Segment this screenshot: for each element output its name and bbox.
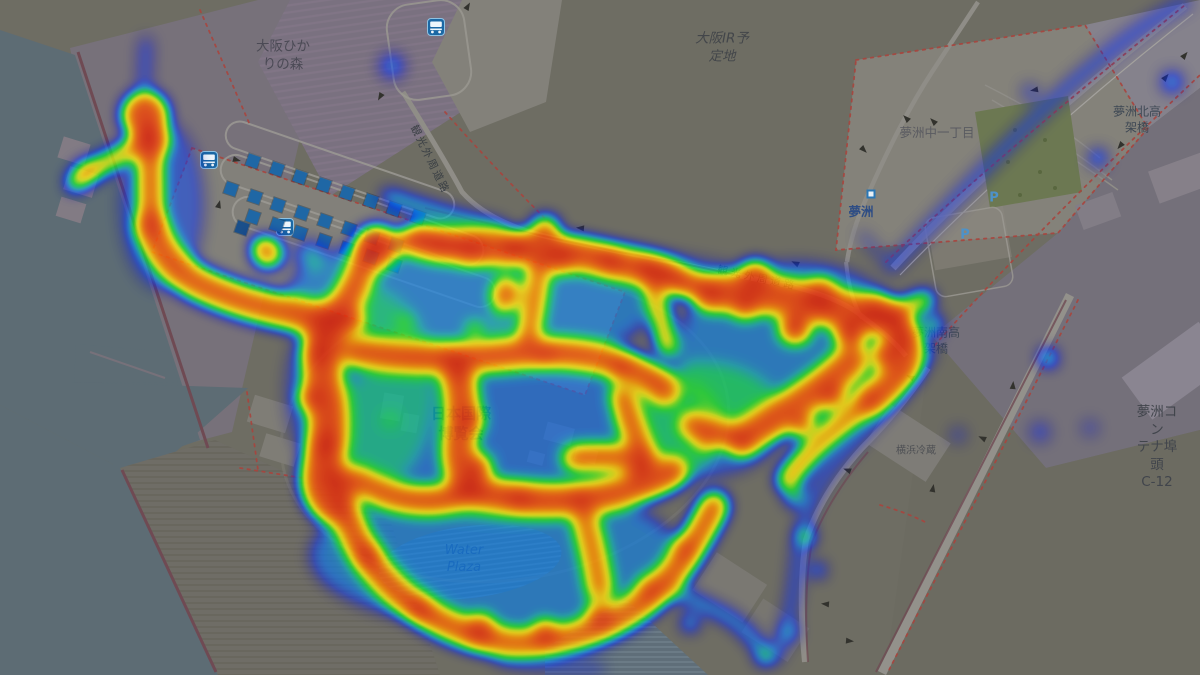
bus-bay-marker — [386, 257, 401, 272]
road-direction-arrow — [905, 373, 915, 382]
label-yumeshima-minami-kokakyo: 夢洲南高 架橋 — [912, 325, 960, 356]
label-yumeshima-naka-1: 夢洲中一丁目 — [899, 125, 974, 141]
road-direction-arrow — [1030, 86, 1039, 93]
bus-bay-marker — [363, 249, 378, 264]
label-expo-nihon-kokusai-hakurankai: 日本国際 博覧会 — [431, 405, 491, 444]
road-direction-arrow — [1180, 50, 1190, 60]
road-direction-arrow — [232, 156, 241, 164]
label-osaka-hikari-no-mori: 大阪ひか りの森 — [256, 38, 310, 73]
bus-bay-marker — [363, 193, 378, 208]
label-yumeshima-kita-kokakyo: 夢洲北高 架橋 — [1113, 104, 1161, 135]
bus-bay-marker — [339, 241, 354, 256]
road-direction-arrow — [842, 466, 852, 474]
bus-bay-marker — [247, 189, 262, 204]
road-direction-arrow — [821, 601, 829, 608]
bus-bay-marker — [294, 205, 309, 220]
bus-bay-marker — [386, 201, 401, 216]
bus-bay-marker — [269, 161, 284, 176]
parking-icon: P — [960, 228, 970, 243]
bus-bay-marker — [245, 209, 260, 224]
bus-bay-marker — [316, 177, 331, 192]
road-direction-arrow — [901, 113, 911, 123]
bus-bay-marker — [270, 197, 285, 212]
tree-icon — [1053, 186, 1057, 190]
road-direction-arrow — [928, 116, 938, 126]
label-yokohama-reizo: 横浜冷蔵 — [896, 445, 936, 458]
road-direction-arrow — [790, 259, 800, 268]
bus-bay-marker — [292, 169, 307, 184]
bus-bay-marker — [341, 221, 356, 236]
label-kanko-gaishu-doro-west: 観光外周道路 — [406, 123, 451, 196]
label-kanko-gaishu-doro-east: 観光外周道路 — [716, 264, 798, 294]
tree-icon — [1043, 138, 1047, 142]
road-direction-arrow — [375, 92, 384, 102]
tree-icon — [1018, 193, 1022, 197]
bus-bay-marker-dark — [234, 220, 249, 235]
map-features: 大阪ひか りの森大阪IR予 定地夢洲中一丁目夢洲夢洲北高 架橋夢洲南高 架橋夢洲… — [0, 0, 1200, 675]
road-direction-arrow — [977, 434, 987, 443]
road-direction-arrow — [463, 1, 472, 11]
road-direction-arrow — [846, 638, 854, 645]
tree-icon — [1038, 170, 1042, 174]
label-water-plaza: Water Plaza — [445, 543, 484, 577]
label-yumeshima-station: 夢洲 — [848, 204, 873, 220]
station-icon — [867, 190, 876, 199]
bus-bay-marker — [339, 185, 354, 200]
road-direction-arrow — [576, 225, 584, 232]
bus-bay-marker — [316, 233, 331, 248]
road-direction-arrow — [859, 145, 869, 155]
road-direction-arrow — [215, 199, 223, 208]
map-viewport[interactable]: 大阪ひか りの森大阪IR予 定地夢洲中一丁目夢洲夢洲北高 架橋夢洲南高 架橋夢洲… — [0, 0, 1200, 675]
bus-bay-marker — [245, 153, 260, 168]
bus-bay-marker — [388, 237, 403, 252]
road-direction-arrow — [1010, 381, 1017, 389]
parking-icon: P — [989, 191, 999, 206]
road-direction-arrow — [929, 484, 936, 493]
bus-bay-marker — [317, 213, 332, 228]
bus-bay-marker — [292, 225, 307, 240]
road-direction-arrow — [1161, 72, 1171, 82]
label-osaka-ir-yoteichi: 大阪IR予 定地 — [695, 30, 749, 65]
road-direction-arrow — [1115, 141, 1125, 151]
label-yumeshima-container-c12: 夢洲コン テナ埠頭 C-12 — [1136, 404, 1179, 492]
bus-bay-marker — [223, 181, 238, 196]
tree-icon — [1013, 128, 1017, 132]
bus-bay-marker — [364, 229, 379, 244]
bus-bay-marker — [410, 209, 425, 224]
tree-icon — [1006, 160, 1010, 164]
